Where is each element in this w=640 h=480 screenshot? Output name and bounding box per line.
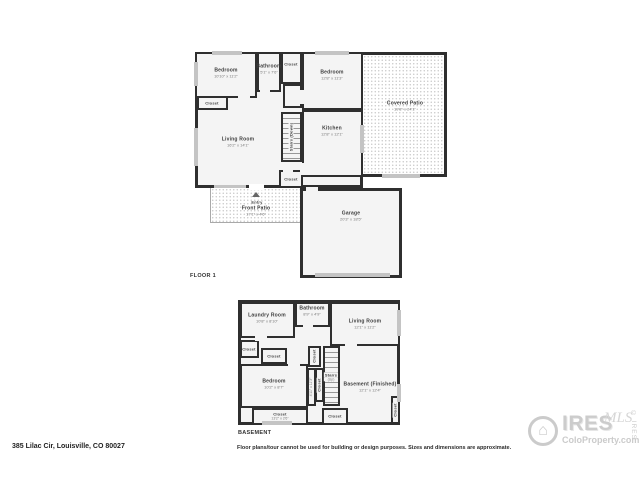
room-label-front-patio: Front Patio 17'1" x 4'6" xyxy=(242,205,271,216)
room-name: Closet xyxy=(317,377,322,392)
room-label-stairs-up: Stairs (Up) xyxy=(324,372,338,381)
door-opening xyxy=(288,362,300,367)
room-name: Closet xyxy=(312,348,317,363)
door-opening xyxy=(255,335,267,341)
room-dims: 16'2" x 14'1" xyxy=(222,143,254,148)
house-icon: ⌂ xyxy=(528,416,558,446)
room-dims: 5'1" x 7'6" xyxy=(256,70,281,75)
room-label-bedroom1: Bedroom 10'10" x 11'2" xyxy=(214,67,238,78)
window-marker xyxy=(194,62,198,86)
window-marker xyxy=(214,185,246,188)
basement-title: BASEMENT xyxy=(238,430,271,436)
window-marker xyxy=(194,128,198,166)
room-name: Closet xyxy=(205,101,218,106)
room-name: Closet xyxy=(242,347,255,352)
entry-door-opening xyxy=(249,184,264,190)
entry-arrow-icon xyxy=(252,192,260,197)
ires-logo: ⌂ IRES MLS ColoProperty.com © IRES xyxy=(524,408,640,460)
room-label-basement-living: Living Room 12'1" x 11'2" xyxy=(349,318,381,329)
room-dims: 10'10" x 11'2" xyxy=(214,74,238,79)
door-opening xyxy=(303,324,313,329)
room-label-closet-entry: Closet xyxy=(284,177,297,182)
garage-door-marker xyxy=(315,273,390,277)
room-name: Closet xyxy=(284,62,297,67)
room-label-living: Living Room 16'2" x 14'1" xyxy=(222,136,254,147)
room-dims: (Up) xyxy=(324,377,338,381)
garage-area xyxy=(300,188,402,278)
window-marker xyxy=(212,51,242,55)
door-opening xyxy=(300,163,305,175)
room-dims: 12'1" x 11'2" xyxy=(349,325,381,330)
room-name: Entry xyxy=(251,200,262,205)
floor1-bedroom2-area xyxy=(302,52,363,110)
room-label-kitchen: Kitchen 12'8" x 12'1" xyxy=(321,125,343,136)
room-label-entry: Entry xyxy=(251,200,262,205)
covered-patio-area xyxy=(363,52,447,177)
room-name: Closet xyxy=(284,177,297,182)
door-opening xyxy=(260,89,270,94)
room-dims: 19'8" x 24'1" xyxy=(387,107,423,112)
room-dims: 20'3" x 18'5" xyxy=(340,217,362,222)
room-dims: 12'8" x 11'3" xyxy=(320,76,343,81)
ires-copyright-vertical: © IRES xyxy=(630,410,637,440)
room-label-closet-bed1: Closet xyxy=(205,101,218,106)
window-marker xyxy=(315,51,349,55)
room-dims: 10'2" x 8'7" xyxy=(262,385,285,390)
room-label-laundry: Laundry Room 10'8" x 8'10" xyxy=(248,312,286,323)
garage-door-opening xyxy=(306,187,318,192)
floorplan-page: { "floor1": { "title": "FLOOR 1", "rooms… xyxy=(0,0,640,480)
sliding-door-marker xyxy=(360,125,364,153)
room-label-garage: Garage 20'3" x 18'5" xyxy=(340,210,362,221)
floor1-closet-top-area xyxy=(281,52,302,84)
room-label-closet-bottom: Closet 13'2" x 2'6" xyxy=(271,411,288,420)
room-name: Closet xyxy=(328,414,341,419)
floor1-title: FLOOR 1 xyxy=(190,273,216,279)
floor1-kitchen-area xyxy=(302,110,363,177)
coloproperty-text: ColoProperty.com xyxy=(562,435,639,445)
room-label-bathroom: Bathroom 5'1" x 7'6" xyxy=(256,63,281,74)
door-opening xyxy=(283,169,293,173)
room-label-basement-bathroom: Bathroom 8'9" x 4'9" xyxy=(299,305,324,316)
door-opening xyxy=(238,94,250,99)
room-label-bedroom2: Bedroom 12'8" x 11'3" xyxy=(320,69,343,80)
room-label-closet-right: Closet xyxy=(393,402,398,417)
room-label-basement-finished: Basement (Finished) 12'1" x 12'4" xyxy=(344,381,397,392)
window-marker xyxy=(382,174,420,178)
room-name: Closet xyxy=(267,354,280,359)
room-label-closet-dims: 4'11" x 11'3" xyxy=(309,378,313,397)
room-label-basement-bedroom: Bedroom 10'2" x 8'7" xyxy=(262,378,285,389)
door-opening xyxy=(300,90,305,104)
room-name: Stairs (Down) xyxy=(289,122,294,152)
room-dims: 12'8" x 12'1" xyxy=(321,132,343,137)
property-address: 385 Lilac Cir, Louisville, CO 80027 xyxy=(12,443,125,450)
room-dims: 10'8" x 8'10" xyxy=(248,319,286,324)
window-marker xyxy=(397,310,401,336)
room-label-closet-left2: Closet xyxy=(267,354,280,359)
room-label-stairs-down: Stairs (Down) xyxy=(289,122,294,152)
room-dims: 8'9" x 4'9" xyxy=(299,312,324,317)
room-dims: 12'1" x 12'4" xyxy=(344,388,397,393)
room-label-covered-patio: Covered Patio 19'8" x 24'1" xyxy=(387,100,423,111)
room-label-closet-top: Closet xyxy=(284,62,297,67)
room-label-closet-bottom2: Closet xyxy=(328,414,341,419)
mls-script-text: MLS xyxy=(604,410,632,427)
room-label-closet-stair-top: Closet xyxy=(312,348,317,363)
house-glyph: ⌂ xyxy=(538,422,548,440)
room-label-closet-mid: Closet xyxy=(317,377,322,392)
room-dims: 13'2" x 2'6" xyxy=(271,416,288,420)
window-marker xyxy=(262,421,292,425)
disclaimer-text: Floor plans/tour cannot be used for buil… xyxy=(237,445,511,451)
room-name: Closet xyxy=(393,402,398,417)
room-dims: 4'11" x 11'3" xyxy=(309,378,313,397)
room-dims: 17'1" x 4'6" xyxy=(242,212,271,217)
door-opening xyxy=(345,343,357,349)
room-label-closet-left: Closet xyxy=(242,347,255,352)
window-marker xyxy=(397,384,401,402)
